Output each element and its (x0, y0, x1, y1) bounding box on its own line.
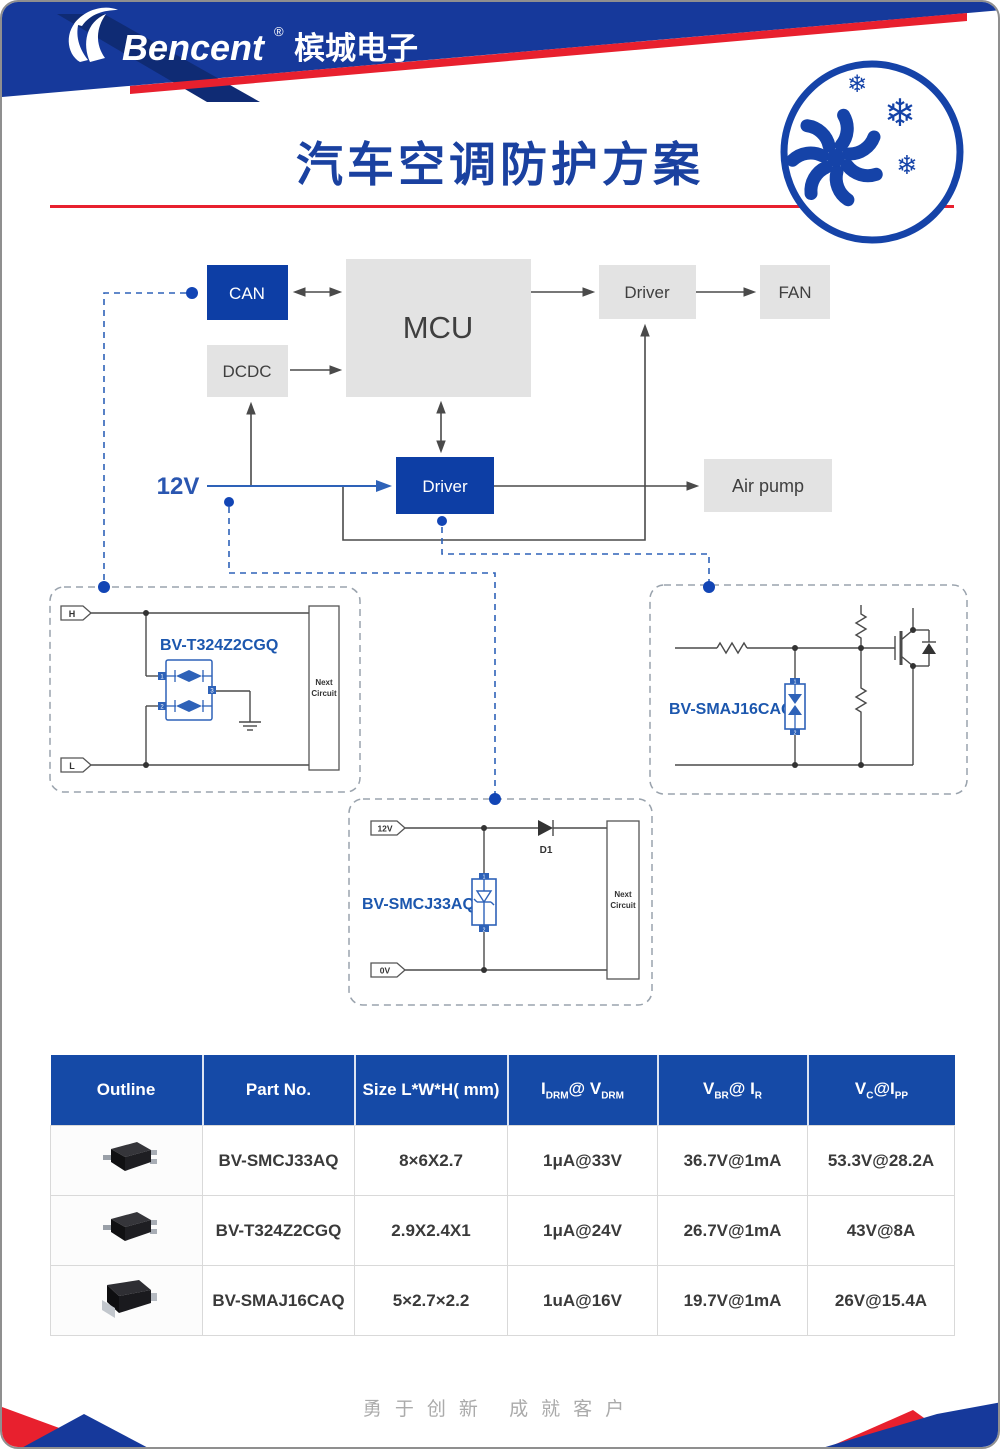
col-header-idrm: IDRM@ VDRM (508, 1055, 658, 1126)
svg-text:Driver: Driver (624, 283, 670, 302)
block-air-pump: Air pump (704, 459, 832, 512)
block-driver-mid: Driver (396, 457, 494, 514)
table-row: BV-SMAJ16CAQ 5×2.7×2.2 1uA@16V 19.7V@1mA… (51, 1266, 955, 1336)
cell-vbr: 19.7V@1mA (658, 1266, 808, 1336)
table-row: BV-T324Z2CGQ 2.9X2.4X1 1μA@24V 26.7V@1mA… (51, 1196, 955, 1266)
svg-text:FAN: FAN (778, 283, 811, 302)
bottom-corner-decorations (2, 1381, 1000, 1449)
block-driver-top: Driver (599, 265, 696, 319)
block-fan: FAN (760, 265, 830, 319)
svg-text:L: L (69, 761, 75, 771)
part-label: BV-T324Z2CGQ (160, 637, 278, 654)
svg-text:MCU: MCU (403, 310, 474, 345)
svg-text:CAN: CAN (229, 284, 265, 303)
cell-size: 2.9X2.4X1 (355, 1196, 508, 1266)
col-header-outline: Outline (51, 1055, 203, 1126)
cell-idrm: 1μA@24V (508, 1196, 658, 1266)
brand-registered-mark: ® (274, 24, 284, 39)
cell-idrm: 1μA@33V (508, 1126, 658, 1196)
svg-text:2: 2 (794, 731, 797, 737)
ac-fan-badge: ❄ ❄ ❄ (772, 52, 972, 252)
poster-page: Bencent ® 槟城电子 汽车空调防护方案 ❄ ❄ ❄ (0, 0, 1000, 1449)
sma-package-image (93, 1273, 161, 1323)
svg-text:12V: 12V (377, 824, 392, 834)
svg-text:Driver: Driver (422, 477, 468, 496)
block-mcu: MCU (346, 259, 531, 397)
block-dcdc: DCDC (207, 345, 288, 397)
sot23-package-image (95, 1205, 159, 1251)
table-row: BV-SMCJ33AQ 8×6X2.7 1μA@33V 36.7V@1mA 53… (51, 1126, 955, 1196)
cell-vbr: 26.7V@1mA (658, 1196, 808, 1266)
connector-tag-12v: 12V (371, 821, 405, 835)
next-circuit-box: Next Circuit (607, 821, 639, 979)
svg-text:Circuit: Circuit (311, 689, 337, 698)
svg-text:Air pump: Air pump (732, 476, 804, 496)
diode-label: D1 (540, 845, 553, 856)
col-header-vbr: VBR@ IR (658, 1055, 808, 1126)
cell-vc: 43V@8A (808, 1196, 955, 1266)
part-label: BV-SMAJ16CAQ (669, 701, 793, 718)
snowflake-icon: ❄ (884, 93, 916, 135)
svg-text:Next: Next (315, 678, 333, 687)
svg-text:H: H (69, 609, 76, 619)
tvs-bidirectional-component: 1 2 (785, 678, 805, 737)
cell-vbr: 36.7V@1mA (658, 1126, 808, 1196)
svg-text:DCDC: DCDC (222, 362, 271, 381)
tvs-unidirectional-component: 1 2 (472, 873, 496, 934)
connector-tag-0v: 0V (371, 963, 405, 977)
cell-vc: 26V@15.4A (808, 1266, 955, 1336)
snowflake-icon: ❄ (896, 150, 918, 180)
system-diagram: CAN DCDC MCU Driver FAN Driver Air pump … (2, 242, 1000, 1032)
tvs-array-component: 1 2 3 (158, 660, 216, 720)
brand-name: Bencent (122, 27, 266, 68)
cell-size: 5×2.7×2.2 (355, 1266, 508, 1336)
col-header-vc: VC@IPP (808, 1055, 955, 1126)
bottom-right-blue-wedge (812, 1402, 1000, 1449)
brand-chinese-name: 槟城电子 (294, 31, 418, 66)
svg-text:Next: Next (614, 890, 632, 899)
supply-12v-label: 12V (157, 473, 200, 500)
cell-part: BV-SMCJ33AQ (203, 1126, 355, 1196)
col-header-size: Size L*W*H( mm) (355, 1055, 508, 1126)
sot23-package-image (95, 1135, 159, 1181)
cell-size: 8×6X2.7 (355, 1126, 508, 1196)
col-header-part-no: Part No. (203, 1055, 355, 1126)
cell-idrm: 1uA@16V (508, 1266, 658, 1336)
next-circuit-box: Next Circuit (309, 606, 339, 770)
spec-table: Outline Part No. Size L*W*H( mm) IDRM@ V… (50, 1055, 955, 1336)
svg-text:Circuit: Circuit (610, 901, 636, 910)
table-header-row: Outline Part No. Size L*W*H( mm) IDRM@ V… (51, 1055, 955, 1126)
part-label: BV-SMCJ33AQ (362, 896, 475, 913)
svg-text:2: 2 (483, 928, 486, 934)
cell-part: BV-T324Z2CGQ (203, 1196, 355, 1266)
cell-part: BV-SMAJ16CAQ (203, 1266, 355, 1336)
snowflake-icon: ❄ (847, 71, 867, 98)
svg-text:0V: 0V (380, 966, 391, 976)
block-can: CAN (207, 265, 288, 320)
cell-vc: 53.3V@28.2A (808, 1126, 955, 1196)
